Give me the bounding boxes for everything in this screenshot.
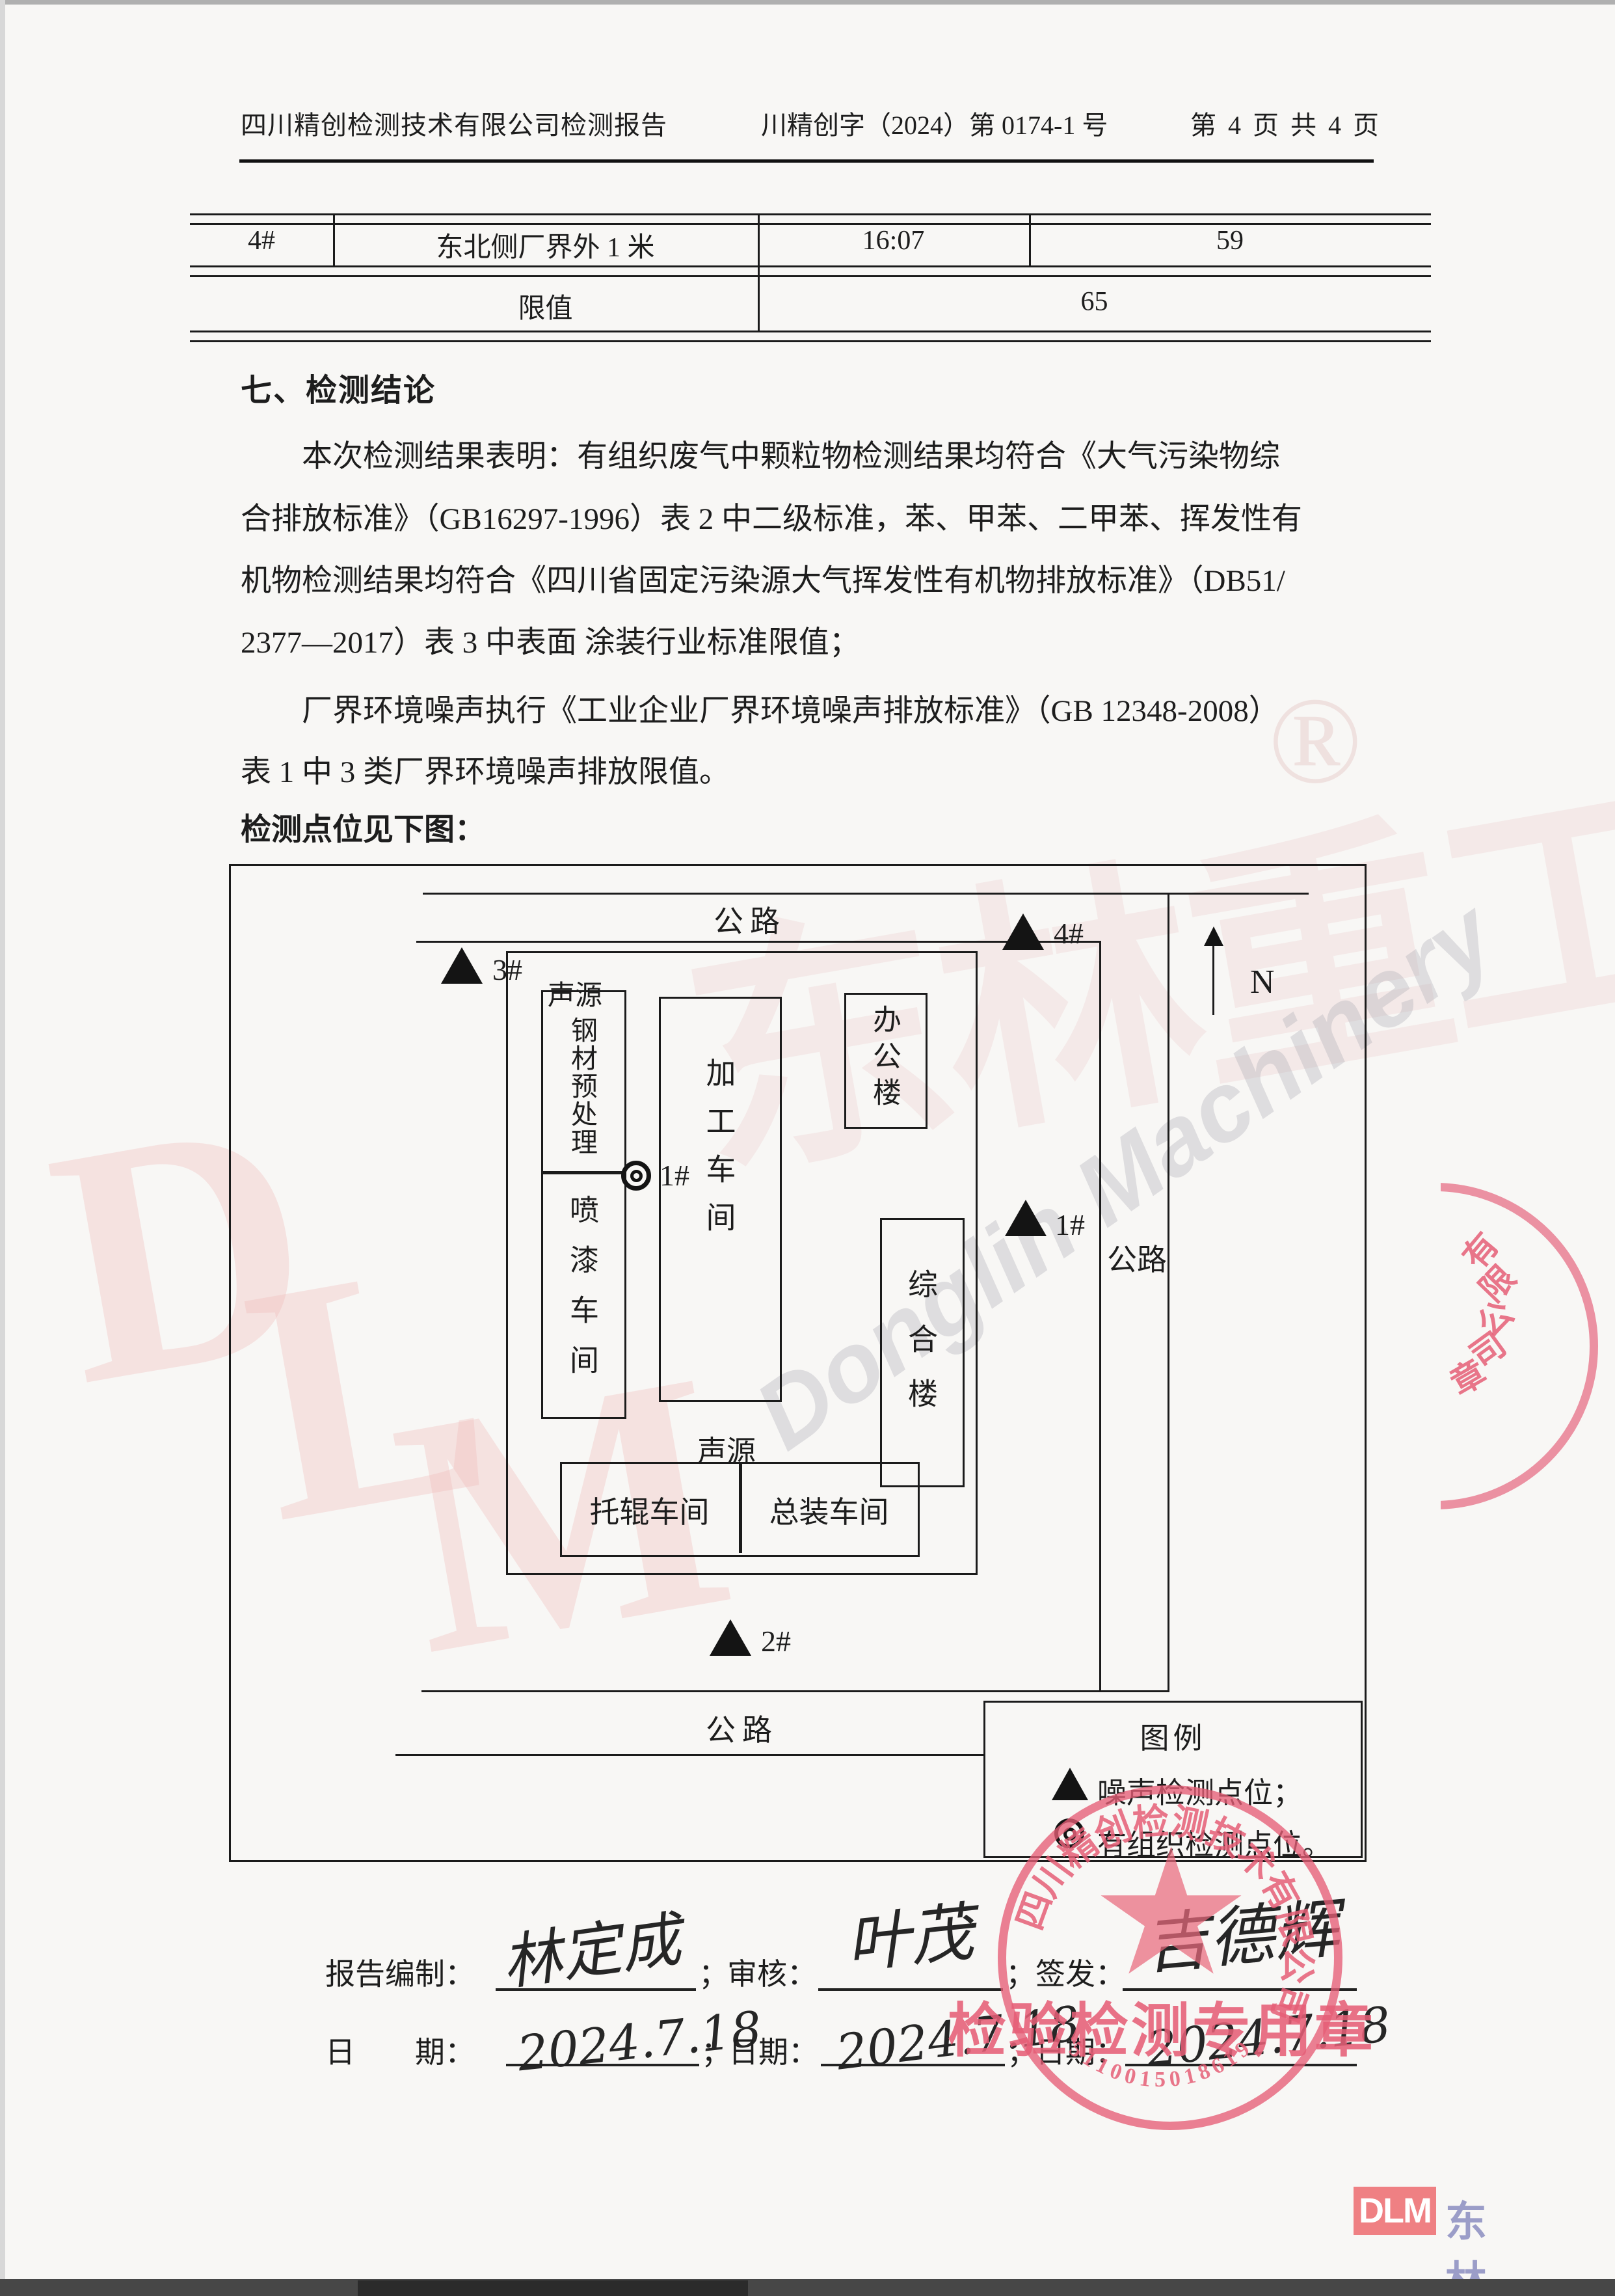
prep-label: 报告编制： <box>325 1951 475 1993</box>
stamp-purpose-text: 检验检测专用章 <box>937 1983 1387 2068</box>
paragraph-line: 厂界环境噪声执行《工业企业厂界环境噪声排放标准》（GB 12348-2008） <box>302 685 1279 730</box>
cell-location: 东北侧厂界外 1 米 <box>333 225 758 265</box>
north-label: N <box>1250 963 1275 1001</box>
building-complex-label: 综合楼 <box>882 1222 959 1479</box>
section-title: 七、检测结论 <box>241 364 436 410</box>
report-page: D L M 东林重工 ® Donglin Machinery 四川精创检测技术有… <box>0 0 1615 2296</box>
stamp-arc-char: 公 <box>1273 1946 1328 1986</box>
paragraph-line: 合排放标准》（GB16297-1996）表 2 中二级标准，苯、甲苯、二甲苯、挥… <box>241 493 1302 538</box>
date-1-line <box>506 2064 699 2066</box>
table-top-border <box>190 213 1431 225</box>
date-label-1: 日 期： <box>325 2029 475 2072</box>
footer-dlm-logo: DLM <box>1354 2187 1436 2235</box>
building-steel-label: 钢材预处理 <box>543 1002 621 1170</box>
table-mid-border <box>190 265 1431 277</box>
road-right-outer-line <box>1168 893 1169 1692</box>
cell-point: 4# <box>190 225 333 256</box>
page-header: 四川精创检测技术有限公司检测报告 川精创字（2024）第 0174-1 号 第 … <box>0 104 1615 143</box>
road-right-inner-line <box>1099 941 1101 1692</box>
road-bottom-inner-line <box>395 1754 983 1756</box>
table-bottom-border <box>190 331 1431 342</box>
noise-marker-2-icon <box>710 1619 751 1656</box>
header-page-number: 第 4 页 共 4 页 <box>1190 104 1381 142</box>
noise-marker-2-label: 2# <box>761 1624 791 1658</box>
paragraph-line: 2377—2017）表 3 中表面 涂装行业标准限值； <box>241 617 860 662</box>
sig-separator: ； <box>701 2029 731 2072</box>
paragraph-line: 本次检测结果表明：有组织废气中颗粒物检测结果均符合《大气污染物综 <box>302 431 1280 476</box>
road-right-label: 公路 <box>1106 1236 1168 1279</box>
building-assembly-label: 总装车间 <box>742 1489 916 1532</box>
road-top-outer-line <box>423 893 1309 895</box>
legend-noise-icon <box>1052 1768 1088 1800</box>
building-paint-label: 喷漆车间 <box>543 1181 621 1409</box>
map-caption: 检测点位见下图： <box>241 804 485 849</box>
edge-stamp: 有 限 公 司 章 <box>1441 1171 1615 1522</box>
cell-value: 59 <box>1029 225 1431 256</box>
cell-time: 16:07 <box>758 225 1029 256</box>
road-top-inner-line <box>416 941 1099 943</box>
stamp-arc-char: 检 <box>1130 1792 1171 1847</box>
building-process-label: 加工车间 <box>661 1014 776 1293</box>
noise-marker-3-icon <box>441 947 483 984</box>
watermark-registered-icon: ® <box>1268 670 1362 812</box>
cell-limit-label: 限值 <box>333 286 758 326</box>
scan-left-edge <box>0 0 5 2296</box>
scan-top-edge <box>0 0 1615 5</box>
review-signature: 叶茂 <box>841 1880 978 1986</box>
noise-marker-1-label: 1# <box>1055 1208 1085 1242</box>
legend-title: 图例 <box>985 1714 1361 1757</box>
stamp-digit: 5 <box>1155 2068 1166 2092</box>
noise-marker-4-label: 4# <box>1054 916 1084 951</box>
header-report-number: 川精创字（2024）第 0174-1 号 <box>761 104 1108 142</box>
building-office-label: 办公楼 <box>846 995 922 1123</box>
road-bottom-label: 公路 <box>706 1707 779 1749</box>
cell-limit-value: 65 <box>758 286 1431 317</box>
sig-separator: ； <box>699 1951 728 1993</box>
header-rule <box>239 159 1374 163</box>
north-arrow-line <box>1212 942 1214 1015</box>
noise-marker-1-icon <box>1005 1200 1047 1236</box>
prep-signature: 林定成 <box>496 1891 686 2001</box>
noise-marker-4-icon <box>1002 913 1044 950</box>
road-bottom-outer-line <box>421 1690 1169 1692</box>
paragraph-line: 表 1 中 3 类厂界环境噪声排放限值。 <box>241 746 730 791</box>
scan-bottom-bar-dark <box>358 2280 748 2296</box>
header-company-title: 四川精创检测技术有限公司检测报告 <box>241 104 667 142</box>
paragraph-line: 机物检测结果均符合《四川省固定污染源大气挥发性有机物排放标准》（DB51/ <box>241 555 1285 600</box>
scan-bottom-bar <box>0 2279 1615 2296</box>
site-diagram: 公路 公路 N 3# 4# 声源 钢材预处理 喷漆车间 1# 加工车间 办公楼 <box>229 864 1363 1858</box>
building-steel-paint-divider <box>541 1171 624 1174</box>
road-top-label: 公路 <box>714 898 786 941</box>
north-arrow-head <box>1204 926 1223 946</box>
date-label-2: 日期： <box>728 2029 818 2072</box>
organized-point-1-inner <box>630 1170 643 1182</box>
results-table: 4# 东北侧厂界外 1 米 16:07 59 限值 65 <box>190 213 1431 334</box>
review-label: 审核： <box>727 1951 817 1993</box>
building-roller-label: 托辊车间 <box>560 1489 739 1532</box>
prep-sig-line <box>496 1988 696 1991</box>
footer-dlm-text: DLM <box>1359 2191 1431 2231</box>
